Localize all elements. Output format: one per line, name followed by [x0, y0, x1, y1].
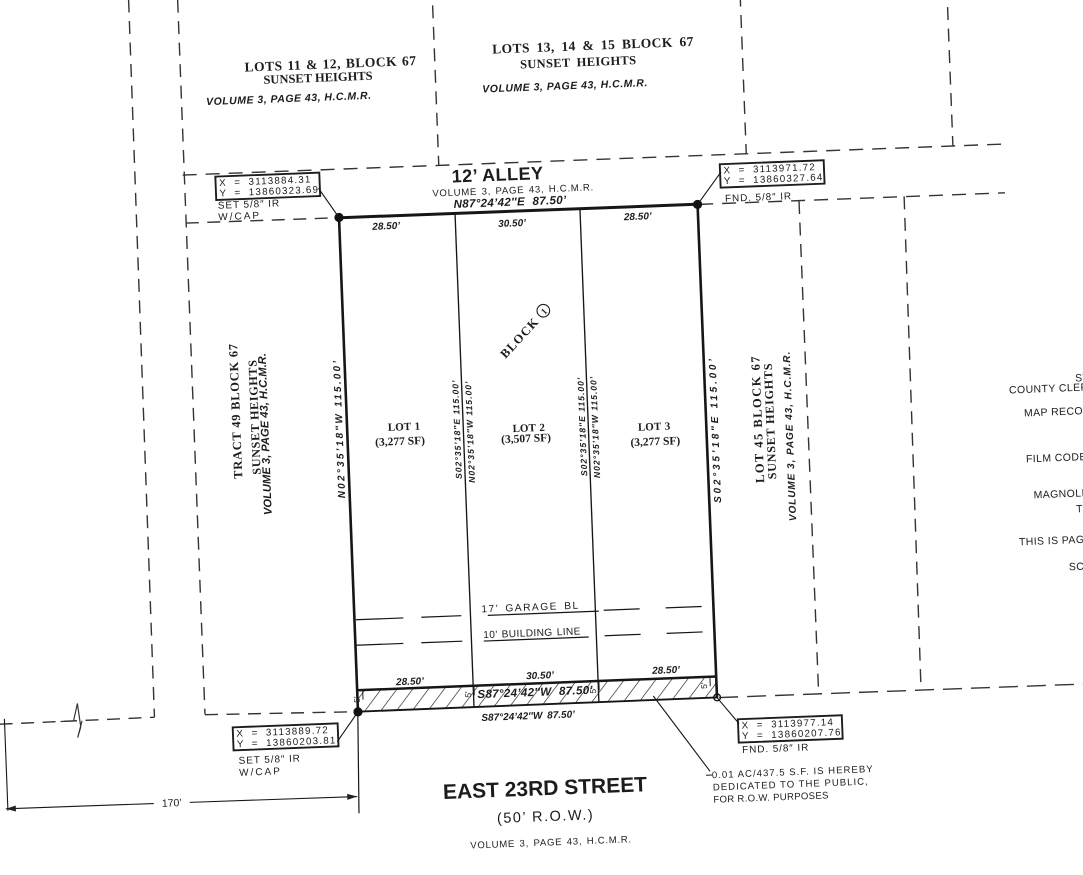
svg-text:5′: 5′: [699, 682, 709, 689]
svg-text:(3,507 SF): (3,507 SF): [501, 432, 551, 446]
svg-text:28.50’: 28.50’: [651, 665, 680, 677]
svg-text:(3,277 SF): (3,277 SF): [630, 435, 680, 449]
svg-text:170’: 170’: [162, 797, 182, 810]
svg-text:W/CAP: W/CAP: [218, 211, 261, 224]
svg-text:30.50’: 30.50’: [498, 218, 526, 230]
svg-text:MAP RECORD: MAP RECORD: [1024, 405, 1083, 420]
svg-text:MAGNOLIA: MAGNOLIA: [1033, 487, 1083, 501]
svg-text:LOT 3: LOT 3: [638, 421, 671, 434]
svg-text:28.50’: 28.50’: [395, 676, 424, 688]
svg-text:28.50’: 28.50’: [623, 211, 652, 223]
svg-text:5′: 5′: [463, 691, 473, 698]
svg-text:(3,277 SF): (3,277 SF): [375, 435, 425, 449]
svg-text:5′: 5′: [352, 696, 362, 703]
svg-text:28.50’: 28.50’: [371, 221, 400, 233]
svg-text:TH: TH: [1076, 503, 1083, 516]
svg-text:30.50’: 30.50’: [526, 670, 554, 682]
svg-text:THIS IS PAGE: THIS IS PAGE: [1019, 534, 1083, 549]
svg-text:W/CAP: W/CAP: [239, 766, 282, 779]
svg-text:12’ ALLEY: 12’ ALLEY: [451, 163, 544, 187]
svg-text:SCALE: SCALE: [1069, 560, 1083, 573]
svg-text:LOT 1: LOT 1: [388, 421, 421, 434]
svg-text:FILM CODE: FILM CODE: [1026, 451, 1083, 465]
